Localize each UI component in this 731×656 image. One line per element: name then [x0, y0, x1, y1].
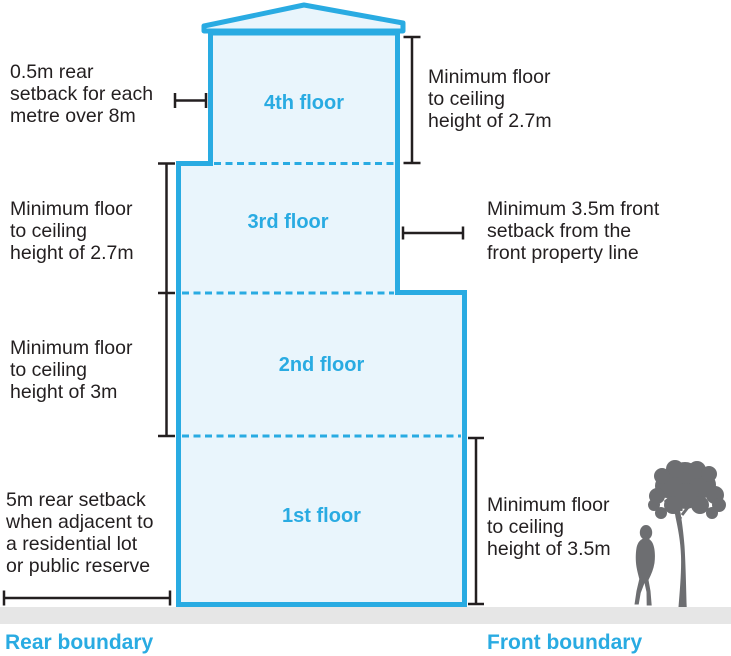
rear-setback-upper-bracket: [175, 93, 206, 108]
front-boundary-label: Front boundary: [487, 631, 642, 655]
text-line: to ceiling: [428, 88, 552, 110]
annotation-ceiling-height-4th: Minimum floorto ceilingheight of 2.7m: [428, 66, 552, 132]
text-line: setback for each: [10, 83, 153, 105]
ceiling-height-1st-dimension: [468, 438, 484, 604]
text-line: to ceiling: [10, 220, 134, 242]
annotation-ceiling-height-1st: Minimum floorto ceilingheight of 3.5m: [487, 494, 611, 560]
text-line: height of 3.5m: [487, 538, 611, 560]
floor-label-4th: 4th floor: [210, 92, 398, 115]
annotation-rear-setback-upper: 0.5m rearsetback for eachmetre over 8m: [10, 61, 153, 127]
text-line: or public reserve: [6, 555, 153, 577]
rear-boundary-label: Rear boundary: [5, 631, 153, 655]
text-line: to ceiling: [10, 359, 132, 381]
text-line: front property line: [487, 242, 659, 264]
floor-label-1st: 1st floor: [178, 505, 465, 528]
text-line: to ceiling: [487, 516, 611, 538]
text-line: Minimum 3.5m front: [487, 198, 659, 220]
text-line: height of 3m: [10, 381, 132, 403]
floor-label-3rd: 3rd floor: [178, 211, 398, 234]
diagram-canvas: 4th floor 3rd floor 2nd floor 1st floor …: [0, 0, 731, 656]
floor-label-2nd: 2nd floor: [178, 354, 465, 377]
annotation-rear-setback-lower: 5m rear setbackwhen adjacent toa residen…: [6, 489, 153, 577]
roof-shape: [204, 5, 403, 31]
ground-strip: [0, 607, 731, 624]
text-line: height of 2.7m: [10, 242, 134, 264]
person-icon: [635, 525, 655, 606]
text-line: setback from the: [487, 220, 659, 242]
ceiling-height-3rd-2nd-dimension: [158, 164, 175, 437]
front-setback-bracket: [403, 227, 463, 240]
text-line: Minimum floor: [487, 494, 611, 516]
text-line: Minimum floor: [10, 337, 132, 359]
tree-icon: [648, 460, 726, 607]
ceiling-height-4th-dimension: [404, 37, 421, 163]
text-line: 5m rear setback: [6, 489, 153, 511]
text-line: Minimum floor: [10, 198, 134, 220]
text-line: metre over 8m: [10, 105, 153, 127]
annotation-ceiling-height-3rd: Minimum floorto ceilingheight of 2.7m: [10, 198, 134, 264]
rear-setback-lower-bracket: [4, 591, 170, 606]
text-line: when adjacent to: [6, 511, 153, 533]
text-line: height of 2.7m: [428, 110, 552, 132]
text-line: 0.5m rear: [10, 61, 153, 83]
text-line: a residential lot: [6, 533, 153, 555]
text-line: Minimum floor: [428, 66, 552, 88]
annotation-ceiling-height-2nd: Minimum floorto ceilingheight of 3m: [10, 337, 132, 403]
annotation-front-setback: Minimum 3.5m frontsetback from thefront …: [487, 198, 659, 264]
